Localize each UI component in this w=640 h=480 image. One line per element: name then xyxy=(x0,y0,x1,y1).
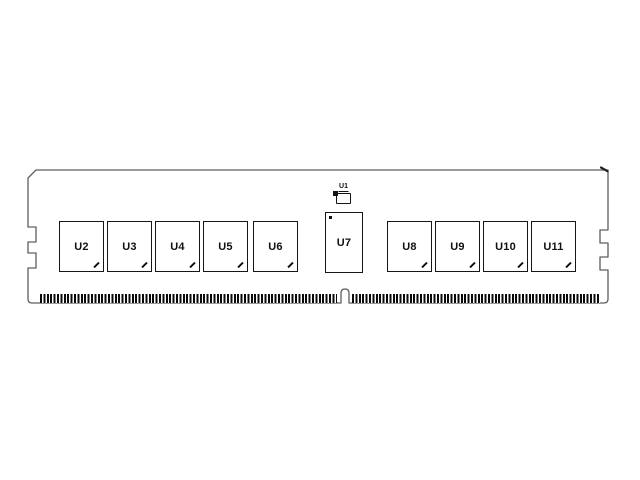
pin1-marker-icon xyxy=(469,262,475,268)
chip-u4-label: U4 xyxy=(170,241,184,253)
pin1-marker-icon xyxy=(421,262,427,268)
chip-u5-label: U5 xyxy=(218,241,232,253)
edge-connector-pins-right xyxy=(352,294,600,303)
chip-u2: U2 xyxy=(59,221,104,272)
chip-u4: U4 xyxy=(155,221,200,272)
pin1-dot-icon xyxy=(329,216,332,219)
chip-u7-label: U7 xyxy=(337,237,351,249)
pin1-marker-icon xyxy=(517,262,523,268)
chip-u9: U9 xyxy=(435,221,480,272)
edge-connector-pins-left xyxy=(40,294,337,303)
chip-u3: U3 xyxy=(107,221,152,272)
component-u1-body xyxy=(336,193,351,204)
chip-u3-label: U3 xyxy=(122,241,136,253)
component-u1-label: U1 xyxy=(338,183,349,192)
chip-u6-label: U6 xyxy=(268,241,282,253)
chip-u6: U6 xyxy=(253,221,298,272)
chip-u10-label: U10 xyxy=(495,241,516,253)
chip-u5: U5 xyxy=(203,221,248,272)
chip-u10: U10 xyxy=(483,221,528,272)
component-u1-spd: U1 xyxy=(336,193,351,204)
chip-u7-register: U7 xyxy=(325,212,363,273)
chip-u9-label: U9 xyxy=(450,241,464,253)
chip-u11: U11 xyxy=(531,221,576,272)
dimm-front-view-diagram: U2 U3 U4 U5 U6 U7 U1 U8 U9 U10 U1 xyxy=(0,0,640,480)
chip-u8: U8 xyxy=(387,221,432,272)
pin1-marker-icon xyxy=(141,262,147,268)
pin1-marker-icon xyxy=(287,262,293,268)
pin1-marker-icon xyxy=(565,262,571,268)
component-u1-tab-icon xyxy=(333,191,338,196)
pin1-marker-icon xyxy=(237,262,243,268)
chip-u11-label: U11 xyxy=(543,241,563,253)
pin1-marker-icon xyxy=(93,262,99,268)
chip-u8-label: U8 xyxy=(402,241,416,253)
chip-u2-label: U2 xyxy=(74,241,88,253)
pin1-marker-icon xyxy=(189,262,195,268)
